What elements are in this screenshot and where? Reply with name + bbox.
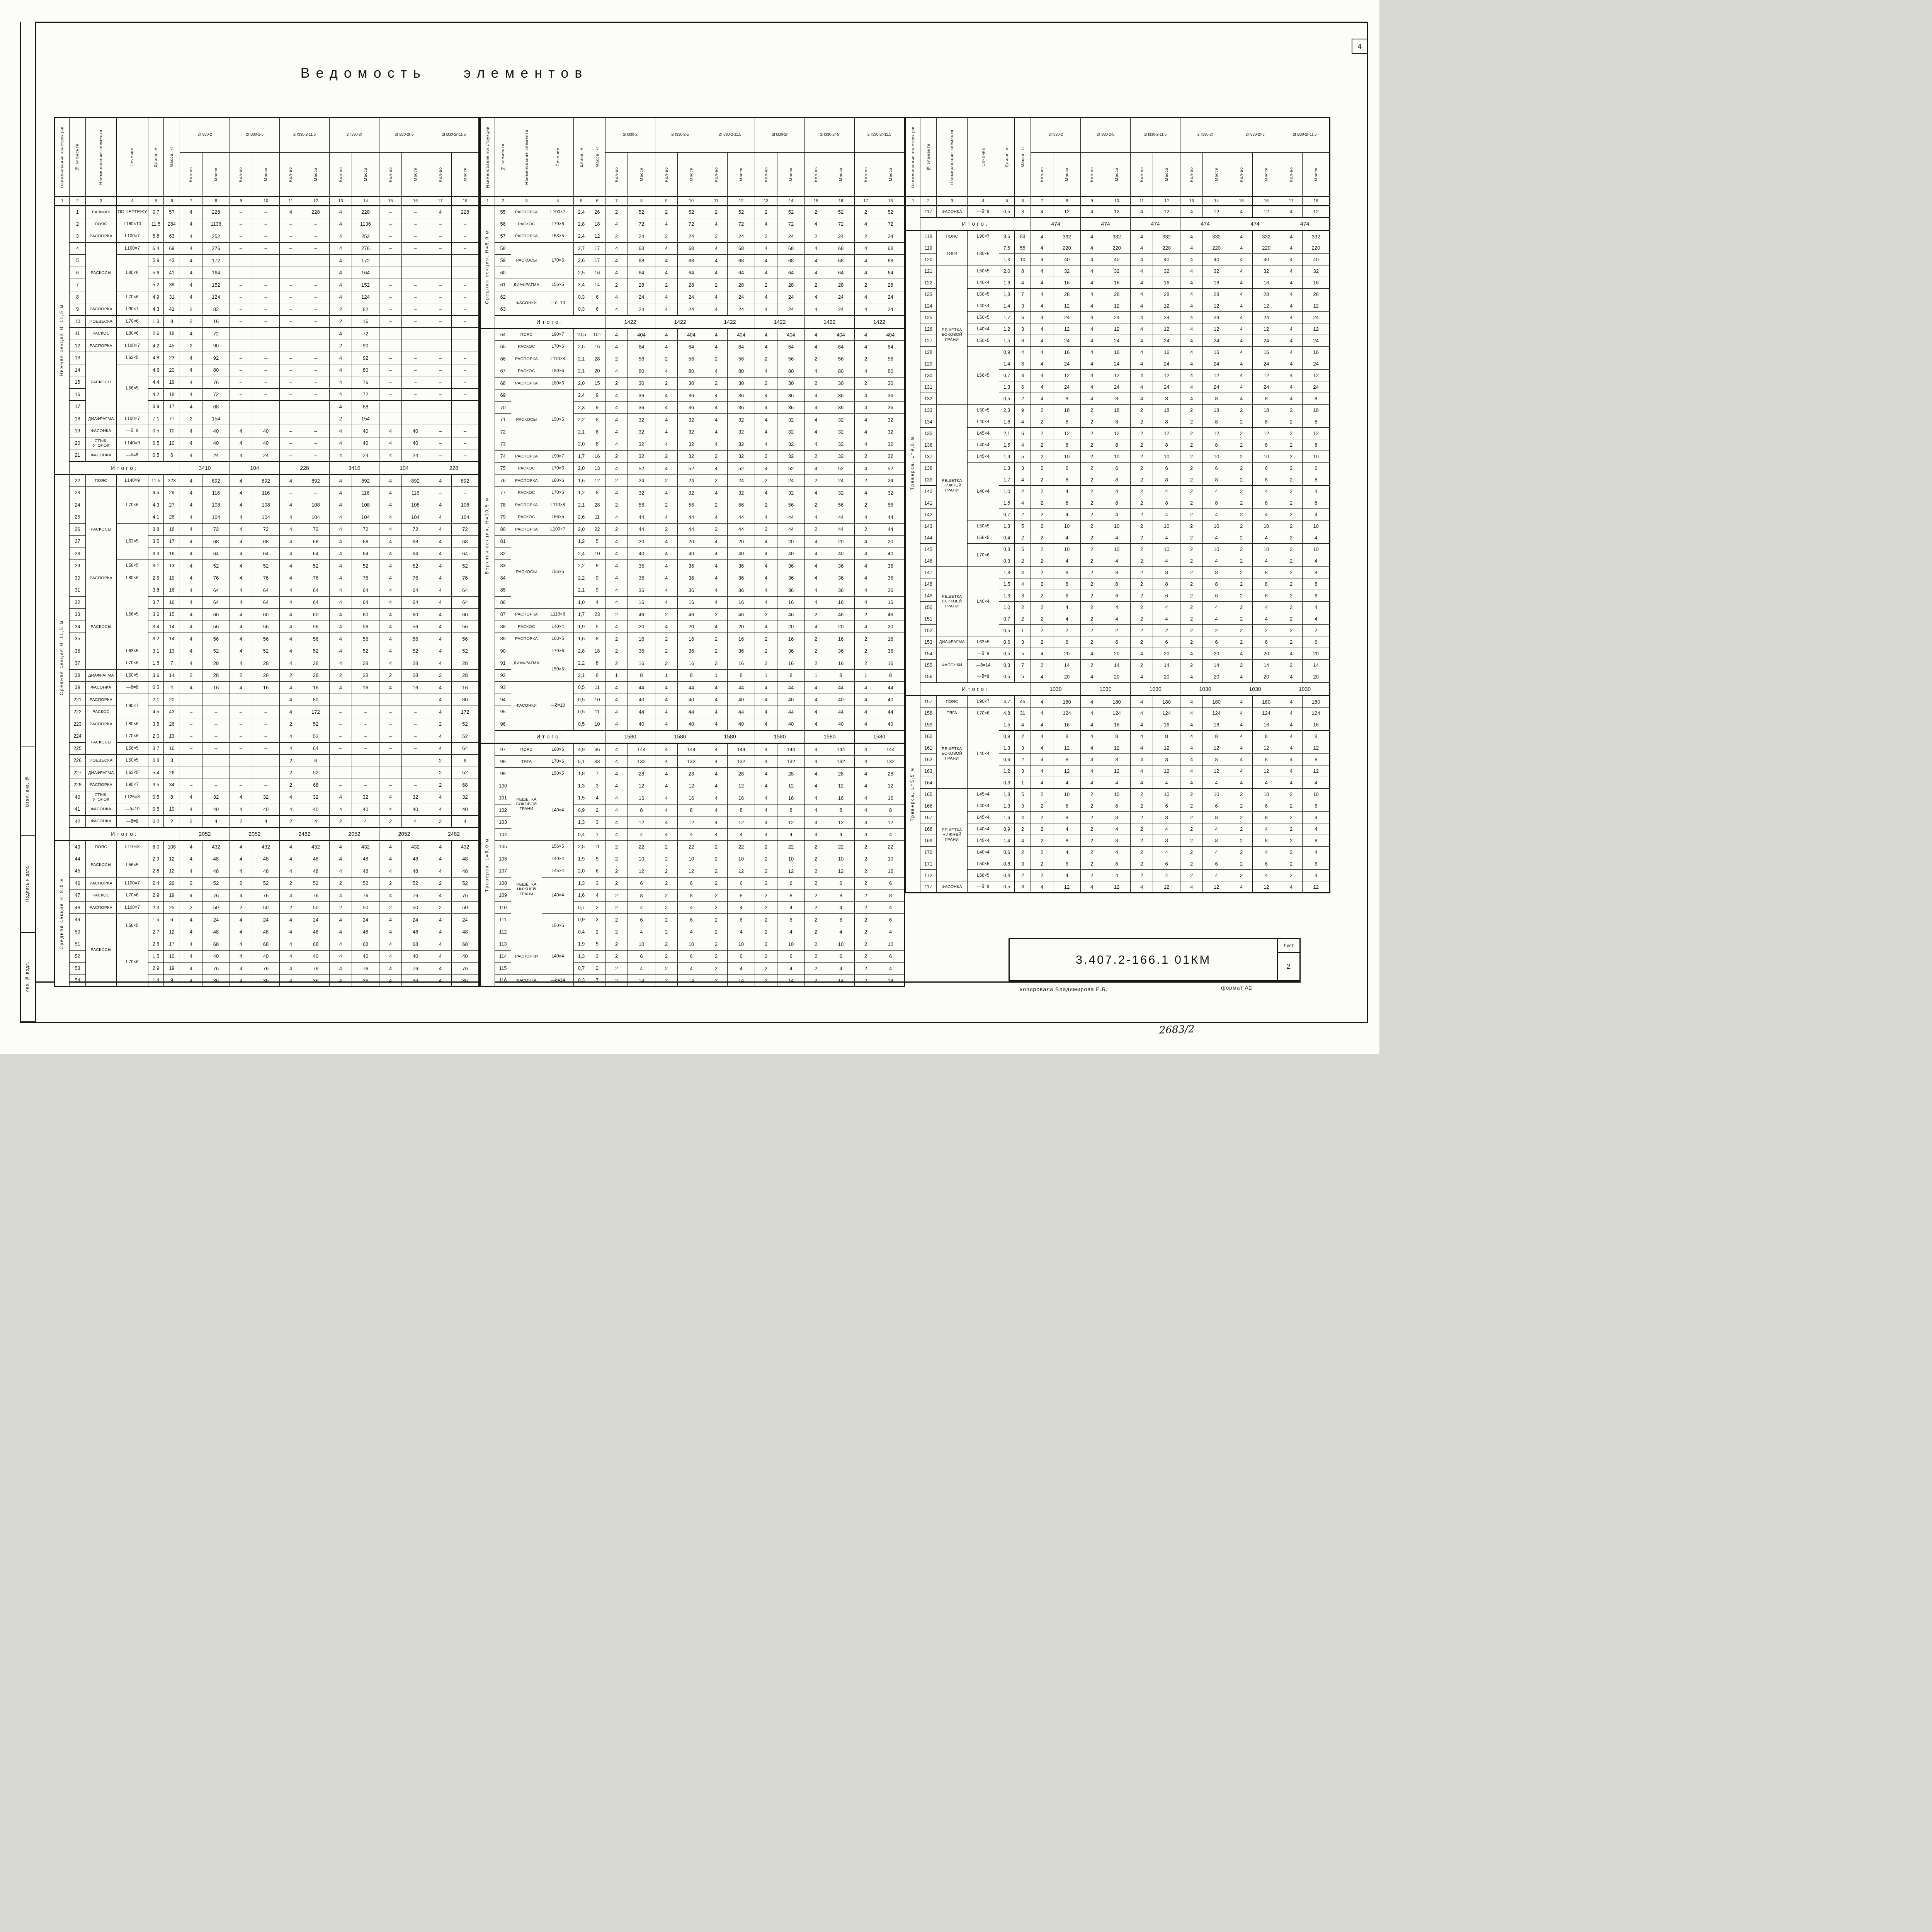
type-mass-cell: 24 bbox=[827, 291, 855, 303]
type-qty-cell: 4 bbox=[755, 828, 777, 841]
type-qty-cell: 4 bbox=[180, 511, 202, 524]
header-construction: Наименование конструкции bbox=[906, 117, 920, 197]
header-type-0: 2П330-2 bbox=[1031, 117, 1081, 152]
type-mass-cell: 40 bbox=[352, 950, 379, 963]
type-mass-cell: 1136 bbox=[202, 218, 230, 230]
type-mass-cell: 10 bbox=[1303, 544, 1330, 555]
type-qty-cell: 4 bbox=[379, 572, 402, 584]
type-mass-cell: 48 bbox=[352, 926, 379, 938]
length-cell: 2,8 bbox=[148, 865, 164, 878]
type-mass-cell: 24 bbox=[402, 449, 429, 462]
element-number-cell: 117 bbox=[920, 881, 937, 893]
type-mass-cell: 40 bbox=[827, 548, 855, 560]
type-mass-cell: 116 bbox=[402, 487, 429, 499]
type-mass-cell: 24 bbox=[1103, 335, 1131, 347]
type-qty-cell: 2 bbox=[1081, 405, 1103, 416]
type-qty-cell: 2 bbox=[755, 914, 777, 926]
type-qty-cell: 2 bbox=[429, 815, 452, 828]
type-qty-cell: 4 bbox=[605, 303, 628, 316]
type-qty-cell: 4 bbox=[1280, 242, 1303, 254]
section-cell: L90×7 bbox=[117, 694, 148, 718]
header-qty-3: Кол-во bbox=[755, 152, 777, 197]
type-qty-cell: 4 bbox=[1031, 765, 1053, 777]
length-cell: 0,6 bbox=[999, 847, 1015, 858]
type-qty-cell: 4 bbox=[230, 449, 252, 462]
type-qty-cell: – bbox=[379, 206, 402, 218]
type-mass-cell: 50 bbox=[302, 901, 330, 914]
type-mass-cell: 32 bbox=[877, 438, 905, 451]
element-number-cell: 85 bbox=[495, 584, 511, 597]
element-name-cell: ДИАФРАГМА bbox=[86, 413, 117, 425]
table-row: 26L63×53,818472472472472472472 bbox=[55, 523, 479, 536]
type-qty-cell: 4 bbox=[1180, 393, 1203, 405]
element-name-cell: РАСПОРКА bbox=[86, 340, 117, 352]
type-qty-cell: 2 bbox=[1230, 486, 1253, 497]
unit-mass-cell: 1 bbox=[1015, 625, 1031, 636]
type-qty-cell: – bbox=[379, 376, 402, 389]
type-mass-cell: 12 bbox=[1203, 323, 1230, 335]
type-qty-cell: 4 bbox=[705, 706, 728, 718]
element-number-cell: 145 bbox=[920, 544, 937, 555]
type-qty-cell: 4 bbox=[705, 365, 728, 378]
type-mass-cell: 48 bbox=[302, 865, 330, 878]
type-mass-cell: 28 bbox=[202, 669, 230, 682]
type-qty-cell: 4 bbox=[1180, 696, 1203, 707]
type-mass-cell: 892 bbox=[452, 474, 479, 487]
type-mass-cell: – bbox=[452, 291, 479, 303]
length-cell: 0,5 bbox=[148, 449, 164, 462]
type-qty-cell: 2 bbox=[655, 279, 678, 291]
element-name-cell: РАСКОС bbox=[511, 365, 542, 378]
unit-mass-cell: 3 bbox=[1015, 206, 1031, 218]
header-element-name: Наименование элемента bbox=[937, 117, 968, 197]
type-qty-cell: 2 bbox=[280, 815, 302, 828]
type-mass-cell: 4 bbox=[1153, 823, 1180, 835]
header-qty-3: Кол-во bbox=[330, 152, 352, 197]
type-mass-cell: 6 bbox=[1253, 463, 1280, 474]
type-mass-cell: 40 bbox=[302, 803, 330, 816]
type-qty-cell: – bbox=[330, 767, 352, 779]
type-mass-cell: – bbox=[252, 755, 280, 767]
type-qty-cell: 4 bbox=[1031, 242, 1053, 254]
type-qty-cell: 2 bbox=[655, 938, 678, 951]
element-number-cell: 11 bbox=[70, 328, 86, 340]
header-submass-text: Масса bbox=[264, 167, 268, 181]
length-cell: 4,8 bbox=[999, 707, 1015, 719]
type-qty-cell: 4 bbox=[655, 768, 678, 780]
type-mass-cell: 20 bbox=[728, 536, 755, 548]
unit-mass-cell: 11 bbox=[589, 841, 605, 853]
element-number-cell: 172 bbox=[920, 870, 937, 881]
type-qty-cell: 2 bbox=[855, 901, 877, 914]
type-qty-cell: 4 bbox=[605, 596, 628, 609]
type-qty-cell: 4 bbox=[1230, 731, 1253, 742]
type-qty-cell: – bbox=[180, 694, 202, 706]
type-qty-cell: – bbox=[429, 218, 452, 230]
type-qty-cell: 4 bbox=[330, 596, 352, 609]
type-qty-cell: 4 bbox=[230, 926, 252, 938]
unit-mass-cell: 9 bbox=[1015, 405, 1031, 416]
length-cell: 4,3 bbox=[148, 303, 164, 316]
type-qty-cell: 2 bbox=[855, 853, 877, 865]
element-number-cell: 161 bbox=[920, 742, 937, 754]
element-name-cell: ПОЯС bbox=[937, 696, 968, 707]
type-qty-cell: – bbox=[230, 291, 252, 303]
type-qty-cell: 4 bbox=[605, 365, 628, 378]
length-cell: 1,2 bbox=[574, 487, 589, 499]
type-qty-cell: 4 bbox=[330, 657, 352, 670]
type-mass-cell: 10 bbox=[1103, 451, 1131, 463]
table-row: 153ДИАФРАГМАL63×50,63262626262626 bbox=[906, 636, 1330, 648]
type-qty-cell: 2 bbox=[1081, 486, 1103, 497]
type-mass-cell: 14 bbox=[1153, 660, 1180, 671]
type-qty-cell: 4 bbox=[755, 438, 777, 451]
type-mass-cell: 36 bbox=[452, 975, 479, 987]
type-mass-cell: 40 bbox=[777, 548, 805, 560]
element-name-cell: РАСПОРКА bbox=[511, 609, 542, 621]
type-qty-cell: 4 bbox=[230, 511, 252, 524]
unit-mass-cell: 16 bbox=[589, 450, 605, 463]
table-row: Нижняя секция Н=11,5 м1БАШМАКПО ЧЕРТЕЖУ0… bbox=[55, 206, 479, 218]
type-qty-cell: 2 bbox=[1280, 660, 1303, 671]
type-mass-cell: 68 bbox=[202, 938, 230, 951]
type-qty-cell: 4 bbox=[1230, 254, 1253, 265]
type-qty-cell: – bbox=[280, 218, 302, 230]
type-mass-cell: – bbox=[402, 206, 429, 218]
element-number-cell: 133 bbox=[920, 405, 937, 416]
header-element-number: № элемента bbox=[70, 117, 86, 197]
column-number: 8 bbox=[628, 197, 655, 206]
total-value-cell: 228 bbox=[280, 461, 330, 474]
header-qty-0: Кол-во bbox=[1031, 152, 1053, 197]
length-cell: 1,3 bbox=[999, 800, 1015, 812]
type-qty-cell: – bbox=[230, 755, 252, 767]
unit-mass-cell: 3 bbox=[1015, 590, 1031, 602]
type-qty-cell: 4 bbox=[855, 218, 877, 230]
length-cell: 1,3 bbox=[574, 877, 589, 889]
copied-by-note: копировала Владимирова Е.Б. bbox=[1020, 986, 1108, 992]
type-qty-cell: 4 bbox=[605, 572, 628, 584]
type-qty-cell: 2 bbox=[805, 206, 827, 218]
type-qty-cell: 4 bbox=[805, 718, 827, 730]
table-row: 221РАСПОРКАL90×72,120––––480––––480 bbox=[55, 694, 479, 706]
type-qty-cell: 4 bbox=[755, 682, 777, 694]
type-qty-cell: 4 bbox=[655, 218, 678, 230]
type-mass-cell: – bbox=[452, 255, 479, 267]
section-cell: L100×7 bbox=[117, 877, 148, 889]
type-qty-cell: 2 bbox=[605, 499, 628, 511]
sheet-number: 2 bbox=[1278, 953, 1299, 980]
type-mass-cell: 80 bbox=[302, 694, 330, 706]
column-number: 9 bbox=[1081, 197, 1103, 206]
element-number-cell: 59 bbox=[495, 255, 511, 267]
type-mass-cell: 68 bbox=[352, 938, 379, 951]
length-cell: 2,4 bbox=[574, 206, 589, 218]
type-qty-cell: 2 bbox=[1081, 660, 1103, 671]
type-mass-cell: 4 bbox=[202, 815, 230, 828]
header-type-0: 2П330-2 bbox=[605, 117, 655, 152]
element-number-cell: 135 bbox=[920, 428, 937, 439]
type-mass-cell: 52 bbox=[302, 718, 330, 730]
type-qty-cell: 4 bbox=[1031, 381, 1053, 393]
type-mass-cell: 14 bbox=[1303, 660, 1330, 671]
type-mass-cell: – bbox=[402, 755, 429, 767]
type-qty-cell: 2 bbox=[1031, 800, 1053, 812]
header-qty-2: Кол-во bbox=[1131, 152, 1153, 197]
length-cell: 2,6 bbox=[148, 328, 164, 340]
section-cell: L110×8 bbox=[542, 499, 574, 511]
type-qty-cell: 2 bbox=[1081, 613, 1103, 625]
type-qty-cell: 4 bbox=[755, 792, 777, 804]
type-mass-cell: 252 bbox=[352, 230, 379, 243]
type-mass-cell: 8 bbox=[678, 804, 705, 816]
type-qty-cell: 4 bbox=[655, 743, 678, 756]
length-cell: 1,6 bbox=[999, 277, 1015, 289]
length-cell: 4,1 bbox=[148, 511, 164, 524]
type-mass-cell: 40 bbox=[202, 437, 230, 449]
type-mass-cell: 12 bbox=[1253, 765, 1280, 777]
length-cell: 2,0 bbox=[574, 463, 589, 475]
type-qty-cell: 4 bbox=[1280, 696, 1303, 707]
type-qty-cell: 2 bbox=[605, 963, 628, 975]
type-qty-cell: 2 bbox=[855, 377, 877, 389]
type-qty-cell: 4 bbox=[705, 560, 728, 572]
column-number: 18 bbox=[1303, 197, 1330, 206]
type-qty-cell: 4 bbox=[1230, 370, 1253, 381]
type-qty-cell: 4 bbox=[755, 463, 777, 475]
section-cell: L70×6 bbox=[117, 315, 148, 328]
type-qty-cell: 4 bbox=[805, 255, 827, 267]
type-qty-cell: 4 bbox=[1230, 358, 1253, 370]
table-row: 3РАСПОРКАL100×75,8634252––––4252–––– bbox=[55, 230, 479, 243]
type-qty-cell: 4 bbox=[1131, 765, 1153, 777]
type-mass-cell: – bbox=[402, 230, 429, 243]
table-row: 13РАСКОСЫL63×54,823492––––492–––– bbox=[55, 352, 479, 364]
type-qty-cell: 4 bbox=[379, 926, 402, 938]
type-qty-cell: 2 bbox=[429, 877, 452, 889]
element-number-cell: 40 bbox=[70, 791, 86, 803]
section-cell: L63×5 bbox=[542, 633, 574, 645]
type-qty-cell: 4 bbox=[230, 596, 252, 609]
document-number: 3.407.2-166.1 01КМ bbox=[1010, 939, 1277, 980]
type-qty-cell: 2 bbox=[755, 353, 777, 365]
type-qty-cell: 2 bbox=[705, 206, 728, 218]
type-mass-cell: 52 bbox=[452, 730, 479, 743]
section-cell: L90×7 bbox=[968, 696, 999, 707]
type-qty-cell: 2 bbox=[1031, 590, 1053, 602]
type-qty-cell: 2 bbox=[855, 938, 877, 951]
unit-mass-cell: 7 bbox=[1015, 289, 1031, 300]
type-qty-cell: 2 bbox=[705, 609, 728, 621]
type-mass-cell: 8 bbox=[1253, 731, 1280, 742]
type-mass-cell: 4 bbox=[1253, 486, 1280, 497]
type-qty-cell: 4 bbox=[705, 328, 728, 341]
element-number-cell: 69 bbox=[495, 389, 511, 402]
element-name-cell: РАСПОРКА bbox=[511, 206, 542, 218]
type-qty-cell: 2 bbox=[705, 645, 728, 657]
type-qty-cell: – bbox=[429, 449, 452, 462]
type-qty-cell: 2 bbox=[1230, 509, 1253, 520]
type-qty-cell: – bbox=[429, 279, 452, 291]
type-mass-cell: 76 bbox=[352, 963, 379, 975]
column-number: 1 bbox=[906, 197, 920, 206]
type-qty-cell: 4 bbox=[1081, 742, 1103, 754]
type-mass-cell: 28 bbox=[352, 657, 379, 670]
type-qty-cell: – bbox=[230, 779, 252, 791]
type-mass-cell: 8 bbox=[1303, 393, 1330, 405]
header-qty-text: Кол-во bbox=[1040, 167, 1044, 182]
type-mass-cell: 64 bbox=[202, 548, 230, 560]
type-qty-cell: 4 bbox=[1131, 300, 1153, 312]
type-mass-cell: 44 bbox=[777, 682, 805, 694]
type-mass-cell: 48 bbox=[252, 865, 280, 878]
table-row: Траверса, L=9,6 м118ПОЯСL90×78,683433243… bbox=[906, 231, 1330, 242]
type-qty-cell: 4 bbox=[1131, 312, 1153, 323]
type-mass-cell: 8 bbox=[1053, 567, 1081, 578]
type-qty-cell: 2 bbox=[755, 474, 777, 487]
element-name-cell: ФАСОНКИ bbox=[511, 682, 542, 730]
type-qty-cell: 4 bbox=[180, 950, 202, 963]
type-mass-cell: – bbox=[202, 755, 230, 767]
unit-mass-cell: 20 bbox=[164, 364, 180, 376]
type-qty-cell: 2 bbox=[1230, 520, 1253, 532]
type-qty-cell: 4 bbox=[180, 401, 202, 413]
type-mass-cell: 228 bbox=[452, 206, 479, 218]
type-mass-cell: 36 bbox=[728, 389, 755, 402]
type-qty-cell: 4 bbox=[855, 426, 877, 438]
type-qty-cell: 4 bbox=[230, 841, 252, 853]
type-mass-cell: – bbox=[402, 315, 429, 328]
header-row-labels: Наименование конструкции№ элементаНаимен… bbox=[55, 117, 479, 152]
type-qty-cell: 2 bbox=[1081, 870, 1103, 881]
column-number: 7 bbox=[180, 197, 202, 206]
type-mass-cell: 22 bbox=[628, 841, 655, 853]
type-qty-cell: 4 bbox=[605, 389, 628, 402]
type-mass-cell: 12 bbox=[1153, 370, 1180, 381]
type-mass-cell: 16 bbox=[777, 596, 805, 609]
type-mass-cell: 64 bbox=[777, 267, 805, 279]
type-mass-cell: 152 bbox=[202, 279, 230, 291]
length-cell: 2,1 bbox=[148, 694, 164, 706]
unit-mass-cell: 31 bbox=[164, 291, 180, 303]
length-cell: 1,9 bbox=[999, 451, 1015, 463]
type-mass-cell: 12 bbox=[1053, 300, 1081, 312]
type-mass-cell: 6 bbox=[1253, 800, 1280, 812]
type-qty-cell: 2 bbox=[180, 303, 202, 316]
type-qty-cell: 4 bbox=[805, 828, 827, 841]
type-qty-cell: – bbox=[230, 401, 252, 413]
element-number-cell: 142 bbox=[920, 509, 937, 520]
type-qty-cell: – bbox=[429, 425, 452, 437]
type-qty-cell: – bbox=[230, 718, 252, 730]
unit-mass-cell: 8 bbox=[589, 633, 605, 645]
unit-mass-cell: 3 bbox=[1015, 463, 1031, 474]
type-mass-cell: – bbox=[252, 730, 280, 743]
type-mass-cell: 36 bbox=[777, 572, 805, 584]
table-row: Средняя секция Н=11,5 м22ПОЯСL140×911,52… bbox=[55, 474, 479, 487]
type-mass-cell: 12 bbox=[1203, 428, 1230, 439]
type-qty-cell: 4 bbox=[379, 889, 402, 902]
type-mass-cell: 432 bbox=[252, 841, 280, 853]
type-qty-cell: 2 bbox=[1180, 812, 1203, 823]
type-mass-cell: 6 bbox=[777, 950, 805, 963]
type-qty-cell: 4 bbox=[1230, 289, 1253, 300]
type-mass-cell: 50 bbox=[452, 901, 479, 914]
type-mass-cell: 24 bbox=[1103, 312, 1131, 323]
unit-mass-cell: 5 bbox=[1015, 671, 1031, 683]
type-mass-cell: 8 bbox=[1053, 474, 1081, 486]
type-mass-cell: – bbox=[402, 291, 429, 303]
header-construction: Наименование конструкции bbox=[480, 117, 495, 197]
table-row: 124L40×41,43412412412412412412 bbox=[906, 300, 1330, 312]
element-name-cell: РАСКОСЫ bbox=[86, 853, 117, 877]
table-row: 47РАСКОСL70×62,919476476476476476476 bbox=[55, 889, 479, 902]
type-mass-cell: 28 bbox=[827, 279, 855, 291]
type-mass-cell: 76 bbox=[202, 572, 230, 584]
type-mass-cell: 6 bbox=[1303, 800, 1330, 812]
type-mass-cell: 16 bbox=[678, 657, 705, 670]
section-cell: —δ=8 bbox=[117, 425, 148, 437]
element-number-cell: 93 bbox=[495, 682, 511, 694]
unit-mass-cell: 3 bbox=[1015, 858, 1031, 870]
element-number-cell: 84 bbox=[495, 572, 511, 584]
table-row: 171L50×50,83262626262626 bbox=[906, 858, 1330, 870]
type-mass-cell: 6 bbox=[728, 877, 755, 889]
type-qty-cell: 2 bbox=[1180, 567, 1203, 578]
type-qty-cell: 4 bbox=[1081, 370, 1103, 381]
type-mass-cell: 44 bbox=[628, 523, 655, 536]
type-qty-cell: 4 bbox=[1081, 300, 1103, 312]
type-mass-cell: 40 bbox=[877, 548, 905, 560]
type-qty-cell: 2 bbox=[1031, 439, 1053, 451]
type-mass-cell: 72 bbox=[628, 218, 655, 230]
type-mass-cell: 64 bbox=[628, 267, 655, 279]
type-qty-cell: 4 bbox=[429, 865, 452, 878]
type-qty-cell: 4 bbox=[1081, 707, 1103, 719]
type-qty-cell: 4 bbox=[1031, 265, 1053, 277]
type-mass-cell: – bbox=[252, 303, 280, 316]
type-mass-cell: 12 bbox=[1253, 300, 1280, 312]
type-qty-cell: 4 bbox=[1230, 765, 1253, 777]
type-qty-cell: 4 bbox=[705, 389, 728, 402]
type-qty-cell: 4 bbox=[855, 743, 877, 756]
type-qty-cell: 4 bbox=[1280, 265, 1303, 277]
type-qty-cell: 4 bbox=[805, 584, 827, 597]
type-mass-cell: 220 bbox=[1053, 242, 1081, 254]
type-mass-cell: 76 bbox=[452, 889, 479, 902]
element-name-cell: РАСКОСЫ bbox=[86, 352, 117, 413]
total-value-cell: 1422 bbox=[605, 315, 655, 328]
type-mass-cell: 8 bbox=[1203, 578, 1230, 590]
column-number: 11 bbox=[1131, 197, 1153, 206]
type-qty-cell: 2 bbox=[755, 657, 777, 670]
type-qty-cell: 4 bbox=[1180, 719, 1203, 731]
type-mass-cell: 8 bbox=[1303, 578, 1330, 590]
type-qty-cell: 2 bbox=[1081, 416, 1103, 428]
type-qty-cell: 4 bbox=[230, 914, 252, 926]
type-qty-cell: 4 bbox=[1031, 335, 1053, 347]
total-value-cell: 2052 bbox=[180, 828, 230, 841]
section-cell: —δ=14 bbox=[542, 975, 574, 987]
unit-mass-cell: 6 bbox=[164, 449, 180, 462]
type-mass-cell: 76 bbox=[302, 889, 330, 902]
type-qty-cell: 4 bbox=[280, 645, 302, 657]
type-mass-cell: 432 bbox=[202, 841, 230, 853]
element-number-cell: 92 bbox=[495, 669, 511, 682]
type-qty-cell: 4 bbox=[1081, 347, 1103, 358]
element-number-cell: 70 bbox=[495, 401, 511, 414]
table-row: 56РАСКОСL70×62,818472472472472472472 bbox=[480, 218, 905, 230]
